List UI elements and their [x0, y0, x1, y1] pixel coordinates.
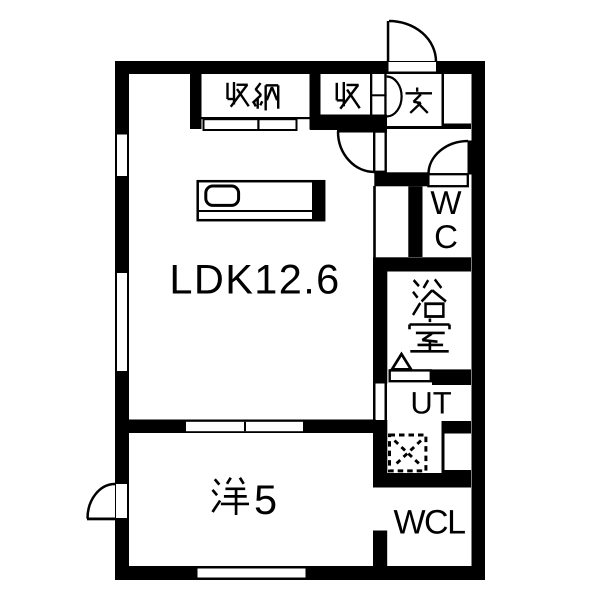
- svg-text:WCL: WCL: [393, 504, 465, 542]
- svg-text:UT: UT: [410, 386, 451, 421]
- svg-text:LDK12.6: LDK12.6: [169, 256, 340, 303]
- svg-text:C: C: [434, 218, 458, 255]
- svg-text:W: W: [430, 184, 462, 221]
- svg-text:5: 5: [254, 476, 277, 523]
